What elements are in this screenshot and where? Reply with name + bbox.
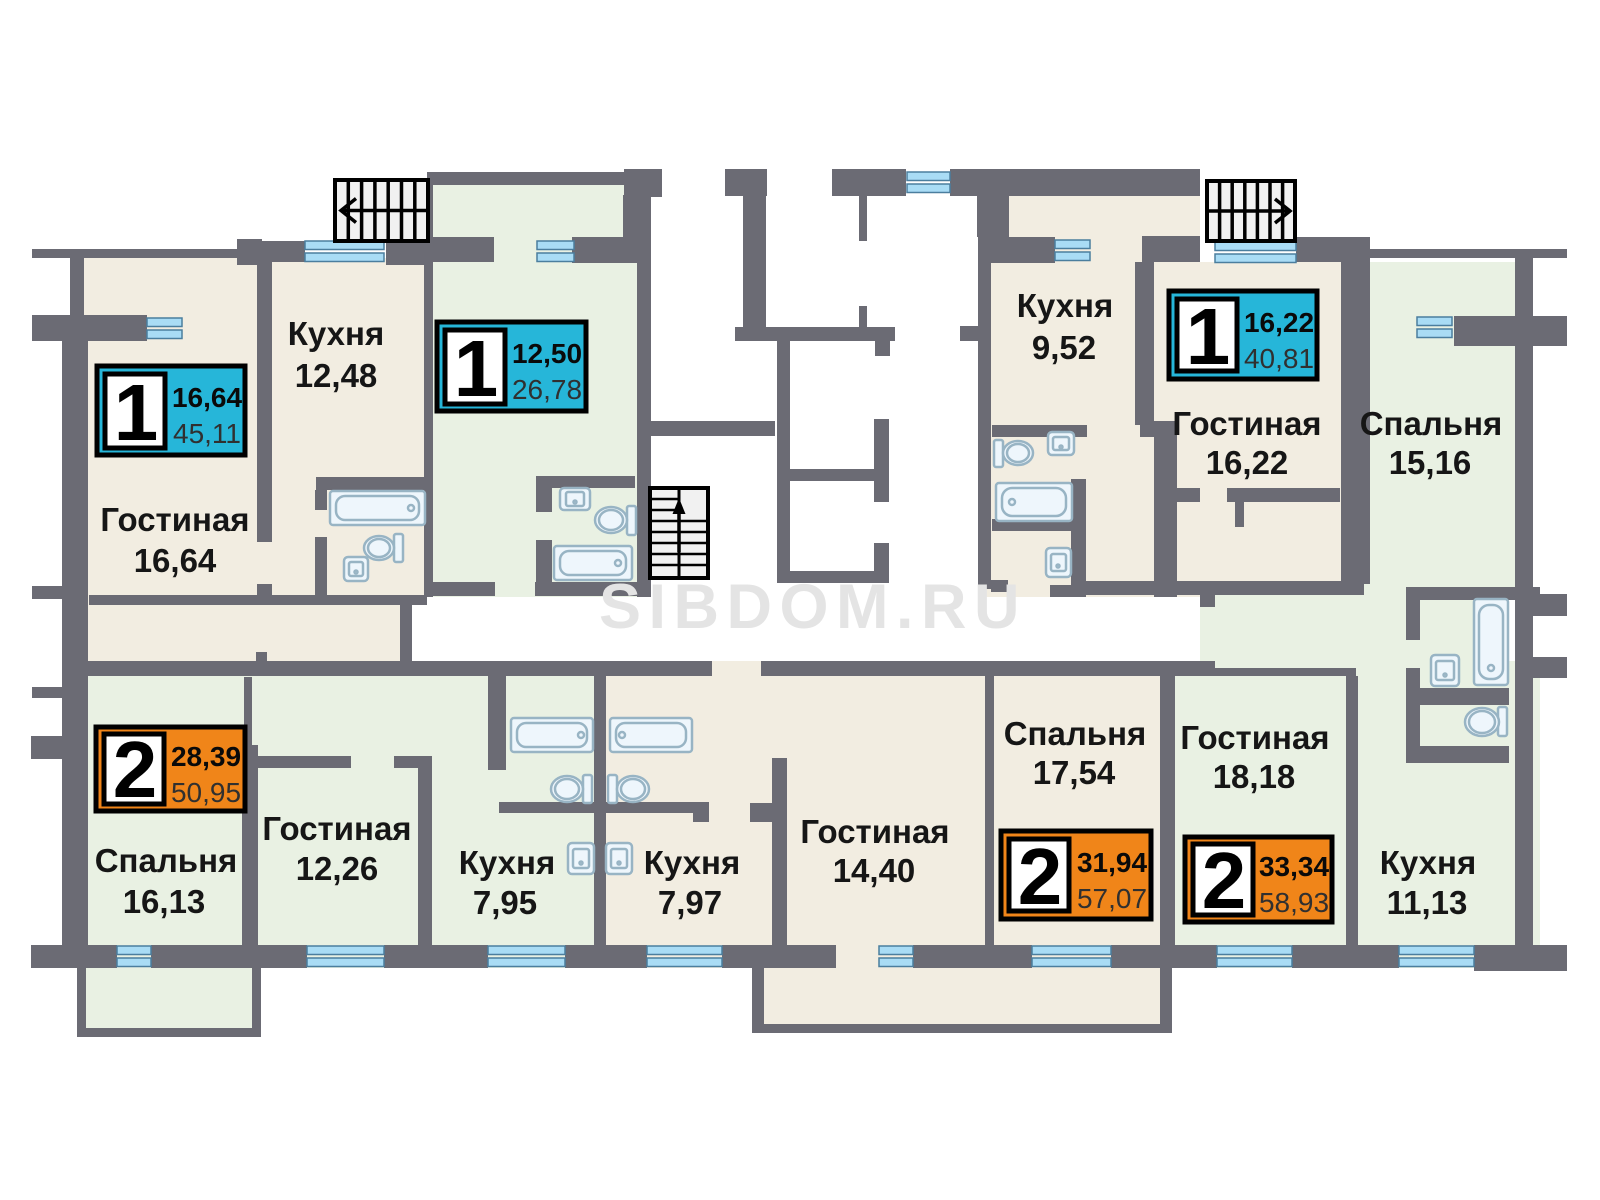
svg-text:14,40: 14,40 — [833, 852, 916, 889]
svg-text:2: 2 — [1018, 832, 1063, 921]
svg-text:7,97: 7,97 — [658, 884, 722, 921]
svg-text:Кухня: Кухня — [1380, 844, 1476, 881]
svg-text:40,81: 40,81 — [1244, 343, 1314, 374]
svg-text:15,16: 15,16 — [1389, 444, 1472, 481]
svg-text:11,13: 11,13 — [1387, 884, 1468, 921]
svg-text:Спальня: Спальня — [95, 842, 238, 879]
svg-text:16,22: 16,22 — [1244, 307, 1314, 338]
svg-text:SIBDOM.RU: SIBDOM.RU — [599, 572, 1027, 642]
svg-text:17,54: 17,54 — [1033, 754, 1116, 791]
svg-text:9,52: 9,52 — [1032, 329, 1096, 366]
svg-text:Гостиная: Гостиная — [1172, 405, 1321, 442]
svg-text:57,07: 57,07 — [1077, 883, 1147, 914]
svg-text:1: 1 — [114, 368, 159, 457]
svg-text:18,18: 18,18 — [1213, 758, 1296, 795]
svg-text:28,39: 28,39 — [171, 741, 241, 772]
svg-text:Гостиная: Гостиная — [262, 810, 411, 847]
svg-text:45,11: 45,11 — [173, 418, 241, 449]
svg-text:12,48: 12,48 — [295, 357, 378, 394]
svg-text:16,64: 16,64 — [134, 542, 217, 579]
svg-text:16,64: 16,64 — [172, 382, 242, 413]
svg-text:Кухня: Кухня — [288, 315, 384, 352]
svg-text:Гостиная: Гостиная — [100, 501, 249, 538]
svg-text:12,50: 12,50 — [512, 338, 582, 369]
svg-text:2: 2 — [1202, 836, 1247, 925]
svg-text:2: 2 — [113, 725, 158, 814]
svg-text:16,13: 16,13 — [123, 883, 206, 920]
svg-text:Кухня: Кухня — [459, 844, 555, 881]
svg-text:Гостиная: Гостиная — [800, 813, 949, 850]
svg-text:Спальня: Спальня — [1004, 715, 1147, 752]
svg-text:16,22: 16,22 — [1206, 444, 1289, 481]
svg-text:Гостиная: Гостиная — [1180, 719, 1329, 756]
svg-text:7,95: 7,95 — [473, 884, 537, 921]
svg-text:1: 1 — [454, 324, 499, 413]
svg-text:31,94: 31,94 — [1077, 847, 1147, 878]
svg-text:50,95: 50,95 — [171, 777, 241, 808]
svg-text:33,34: 33,34 — [1259, 851, 1329, 882]
svg-text:1: 1 — [1186, 292, 1231, 381]
svg-text:Кухня: Кухня — [1017, 287, 1113, 324]
svg-text:Кухня: Кухня — [644, 844, 740, 881]
svg-text:12,26: 12,26 — [296, 850, 379, 887]
svg-text:26,78: 26,78 — [512, 374, 582, 405]
svg-text:Спальня: Спальня — [1360, 405, 1503, 442]
svg-text:58,93: 58,93 — [1259, 887, 1329, 918]
